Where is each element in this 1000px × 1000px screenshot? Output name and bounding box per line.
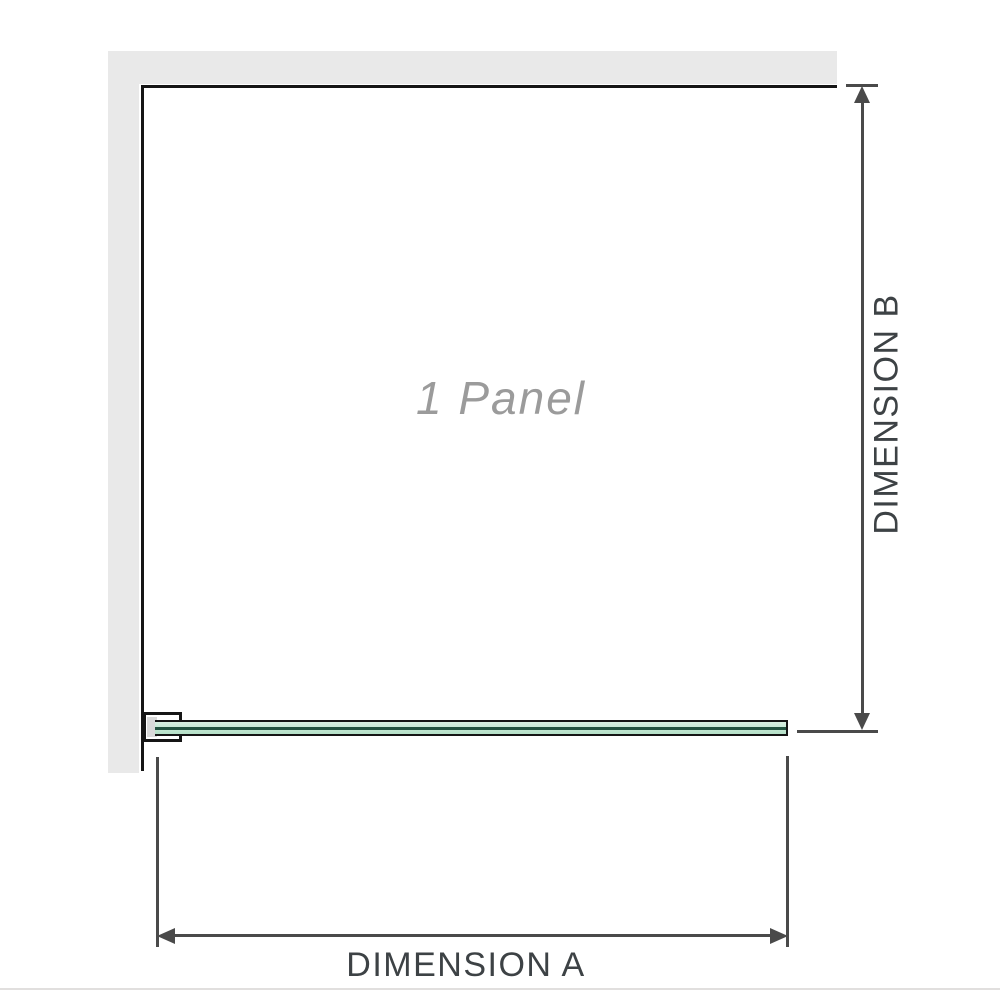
wall-top-band bbox=[108, 51, 837, 84]
page-bottom-divider bbox=[0, 988, 1000, 990]
enclosure-top-border bbox=[141, 85, 837, 88]
enclosure-left-border bbox=[141, 85, 144, 771]
glass-panel bbox=[155, 720, 788, 736]
panel-count-label: 1 Panel bbox=[416, 371, 586, 425]
glass-panel-core-line bbox=[155, 727, 786, 730]
arrow-up-icon bbox=[854, 86, 870, 103]
arrow-right-icon bbox=[770, 928, 788, 944]
dimension-b-bottom-tick bbox=[797, 730, 878, 733]
dimension-b-label: DIMENSION B bbox=[868, 293, 907, 534]
dimension-a-line bbox=[170, 934, 772, 937]
dimension-a-label: DIMENSION A bbox=[346, 946, 585, 985]
arrow-left-icon bbox=[157, 928, 175, 944]
wall-left-band bbox=[108, 51, 139, 773]
dimension-a-left-extension-line bbox=[156, 757, 159, 947]
shower-panel-dimension-diagram: 1 Panel DIMENSION B DIMENSION A bbox=[0, 0, 1000, 1000]
dimension-a-right-extension-line bbox=[786, 756, 789, 947]
dimension-b-line bbox=[861, 98, 864, 720]
arrow-down-icon bbox=[854, 713, 870, 730]
